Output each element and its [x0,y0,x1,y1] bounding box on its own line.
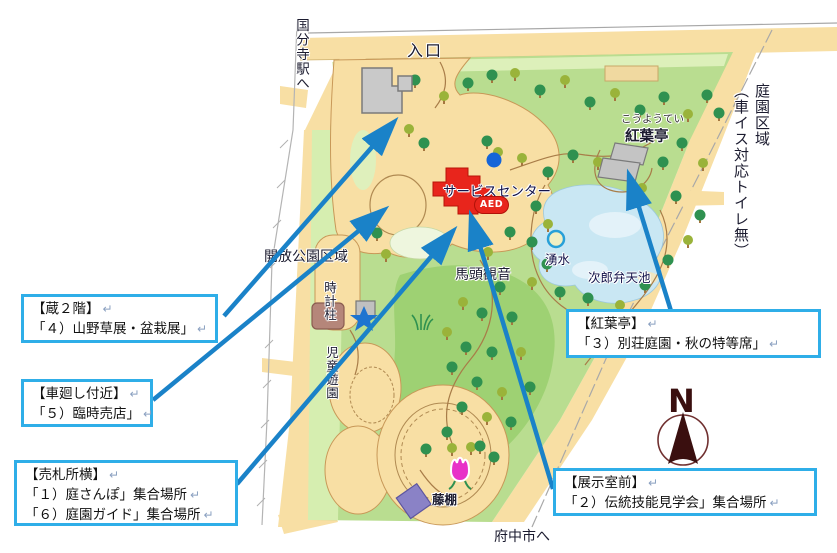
spring-label: 湧水 [545,249,570,268]
garden-zone-note-label: （車イス対応トイレ無） [731,83,752,259]
blue-dot-icon [487,153,502,168]
return-mark: ↵ [204,508,214,522]
callout-line: 「４）山野草展・盆栽展」↵ [32,319,208,339]
wisteria-trellis-label: 藤棚 [432,489,457,508]
callout-line: 【紅葉亭】↵ [577,314,811,334]
callout-line: 「６）庭園ガイド」集合場所↵ [25,505,228,525]
callout-ticket-booth: 【売札所横】↵ 「１）庭さんぽ」集合場所↵ 「６）庭園ガイド」集合場所↵ [14,460,238,526]
callout-kura-2f: 【蔵２階】↵ 「４）山野草展・盆栽展」↵ [21,294,218,343]
return-mark: ↵ [769,337,779,351]
to-kokubunji-station-label: 国分寺駅へ [291,18,311,91]
bato-kannon-label: 馬頭観音 [455,264,511,284]
return-mark: ↵ [109,468,119,482]
callout-line: 【売札所横】↵ [25,465,228,485]
callout-line: 「５）臨時売店」↵ [32,404,143,424]
childrens-park-label: 児童遊園 [322,346,341,400]
callout-line: 「３）別荘庭園・秋の特等席」↵ [577,334,811,354]
koyotei-kana-label: こうようてい [621,111,684,126]
callout-kurumamawashi: 【車廻し付近】↵ 「５）臨時売店」↵ [21,379,153,427]
aed-badge: AED [474,196,509,214]
to-fuchu-city-label: 府中市へ [494,526,550,546]
return-mark: ↵ [130,387,140,401]
callout-line: 「２）伝統技能見学会」集合場所↵ [564,493,807,513]
return-mark: ↵ [143,407,153,421]
callout-koyotei: 【紅葉亭】↵ 「３）別荘庭園・秋の特等席」↵ [566,309,821,358]
open-park-zone-label: 開放公園区域 [264,246,348,266]
return-mark: ↵ [648,317,658,331]
return-mark: ↵ [197,322,207,336]
jiro-benten-pond-label: 次郎弁天池 [588,267,651,286]
garden-event-map: N 入口 国分寺駅へ 庭園区域 （車イス対応トイレ無） 開放公園区域 サービスセ… [0,0,837,553]
callout-exhibit-room: 【展示室前】↵ 「２）伝統技能見学会」集合場所↵ [553,468,817,516]
compass-rose: N [658,382,708,465]
entrance-label: 入口 [407,37,443,61]
return-mark: ↵ [103,302,113,316]
garden-zone-label: 庭園区域 [752,83,773,147]
return-mark: ↵ [648,476,658,490]
clock-pillar-label: 時計柱 [320,281,339,322]
callout-line: 「１）庭さんぽ」集合場所↵ [25,485,228,505]
return-mark: ↵ [770,496,780,510]
return-mark: ↵ [190,488,200,502]
callout-line: 【蔵２階】↵ [32,299,208,319]
callout-line: 【車廻し付近】↵ [32,384,143,404]
kura-annex-building [398,76,412,91]
koyotei-label: 紅葉亭 [625,125,669,146]
callout-line: 【展示室前】↵ [564,473,807,493]
spring-circle-icon [548,231,564,247]
